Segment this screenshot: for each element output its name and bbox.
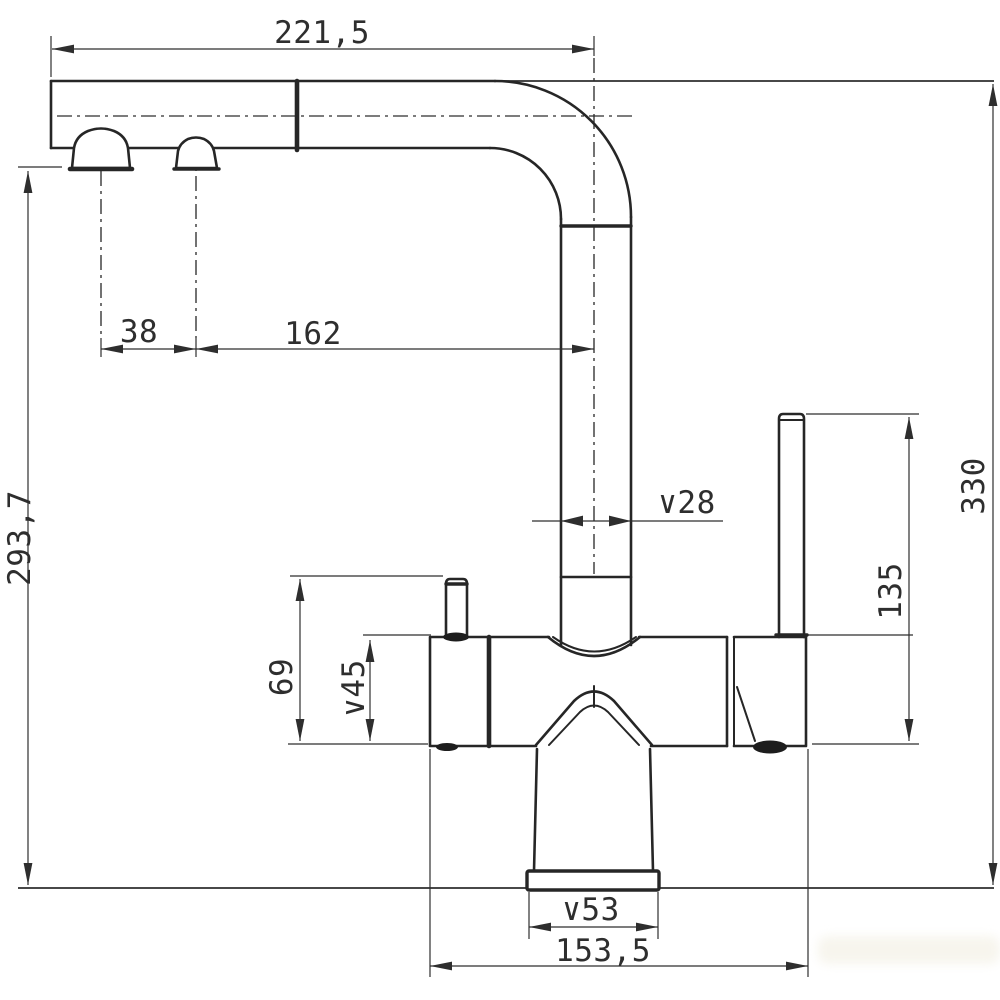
dim-label-body-diameter: ∨45 — [336, 659, 372, 717]
dim-label-base-diameter: ∨53 — [562, 892, 620, 928]
technical-drawing-canvas: 221,5 38 162 293,7 ∨28 330 135 69 ∨45 ∨5… — [0, 0, 1000, 1000]
dim-label-spout-reach: 221,5 — [274, 15, 370, 51]
left-cap-top-seal — [443, 633, 469, 642]
dim-label-outlet-to-axis: 162 — [284, 316, 342, 352]
outlet1-dome — [72, 129, 130, 169]
watermark — [818, 936, 1000, 964]
right-cap-bottom-seal — [753, 741, 787, 754]
drawing-background — [0, 0, 1000, 1000]
base-flange — [527, 871, 659, 890]
dim-label-tube-diameter: ∨28 — [658, 485, 716, 521]
dim-label-overall-height: 330 — [956, 457, 992, 515]
dim-label-overall-depth: 153,5 — [555, 933, 651, 969]
left-cap-bottom-seal — [436, 743, 458, 751]
dim-label-outlet-spacing: 38 — [120, 314, 158, 350]
dim-label-lever-height: 135 — [873, 562, 909, 620]
dim-label-body-height: 69 — [264, 658, 300, 696]
dim-label-spout-outlet-height: 293,7 — [2, 490, 38, 586]
